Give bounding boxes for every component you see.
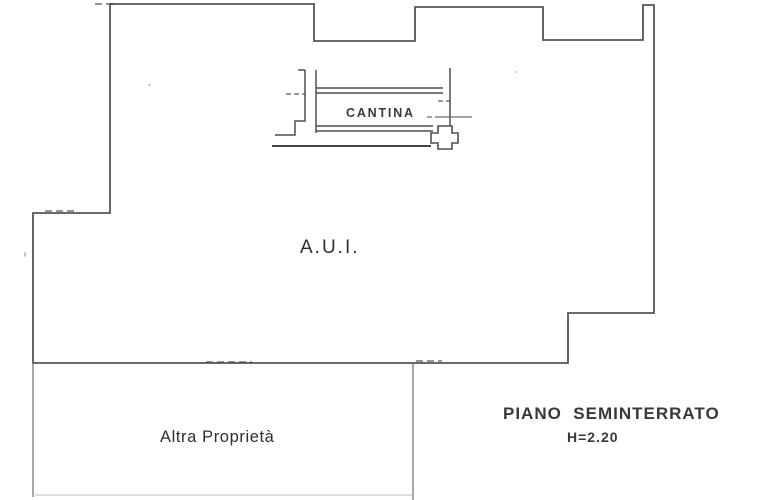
altra-proprieta-label: Altra Proprietà [160,429,274,446]
floor-title-label: PIANO SEMINTERRATO [503,405,720,422]
cantina-stair-detail [275,70,305,135]
scan-speck [24,252,26,257]
cantina-top-wall [316,88,443,93]
floorplan-page: CANTINA A.U.I. Altra Proprietà PIANO SEM… [0,0,777,500]
cantina-bottom-wall [316,126,433,131]
wall-pier [431,126,458,149]
aui-unit-label: A.U.I. [300,238,360,257]
scan-speck [515,71,517,73]
scan-dash-texture [45,4,442,362]
floor-height-label: H=2.20 [567,430,619,444]
cantina-room-label: CANTINA [346,107,415,120]
main-unit-outline [33,4,654,363]
scan-speck [148,84,151,86]
floorplan-drawing [0,0,777,500]
